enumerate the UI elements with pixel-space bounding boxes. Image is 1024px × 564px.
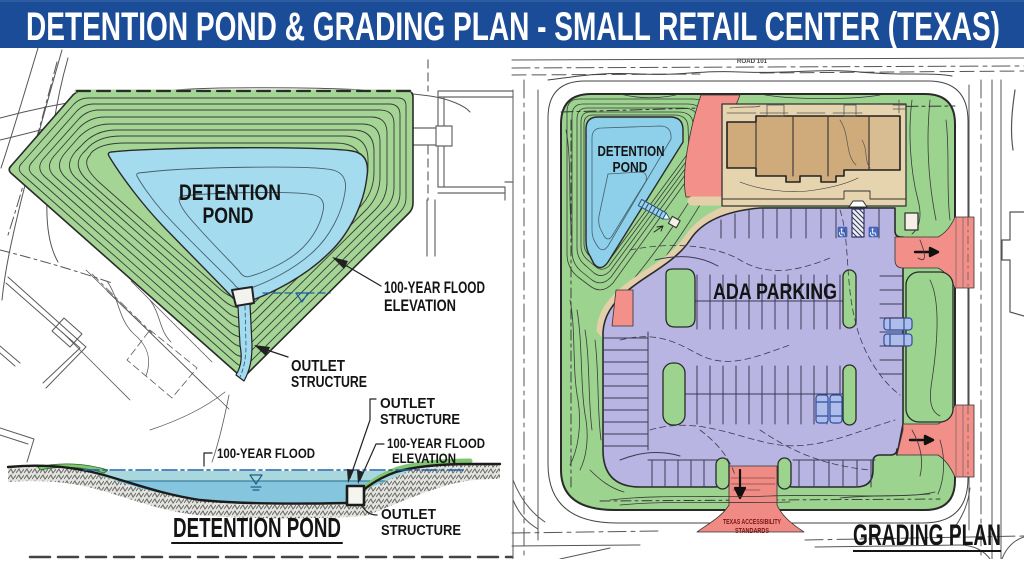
svg-text:POND: POND (613, 159, 648, 176)
svg-text:100-YEAR FLOOD: 100-YEAR FLOOD (387, 435, 485, 451)
svg-text:ELEVATION: ELEVATION (384, 296, 456, 315)
svg-text:ROAD 101: ROAD 101 (737, 58, 768, 65)
svg-text:STRUCTURE: STRUCTURE (291, 374, 367, 391)
svg-text:DETENTION: DETENTION (179, 180, 281, 205)
svg-text:ADA PARKING: ADA PARKING (713, 279, 837, 304)
svg-text:OUTLET: OUTLET (291, 358, 345, 375)
svg-text:100-YEAR FLOOD: 100-YEAR FLOOD (217, 445, 315, 461)
svg-text:OUTLET: OUTLET (380, 395, 435, 412)
svg-text:TEXAS ACCESSIBILITY: TEXAS ACCESSIBILITY (723, 519, 781, 526)
svg-text:100-YEAR FLOOD: 100-YEAR FLOOD (384, 278, 485, 297)
svg-text:STRUCTURE: STRUCTURE (380, 411, 460, 428)
svg-text:DETENTION POND: DETENTION POND (173, 512, 341, 543)
svg-text:DETENTION POND & GRADING PLAN: DETENTION POND & GRADING PLAN - SMALL RE… (26, 5, 1000, 49)
svg-text:OUTLET: OUTLET (381, 506, 436, 523)
svg-text:DETENTION: DETENTION (598, 143, 665, 160)
svg-text:POND: POND (203, 203, 254, 228)
svg-text:STANDARDS: STANDARDS (735, 528, 769, 535)
svg-text:GRADING PLAN: GRADING PLAN (853, 519, 1001, 552)
svg-text:STRUCTURE: STRUCTURE (381, 522, 461, 539)
svg-text:ELEVATION: ELEVATION (392, 450, 456, 466)
